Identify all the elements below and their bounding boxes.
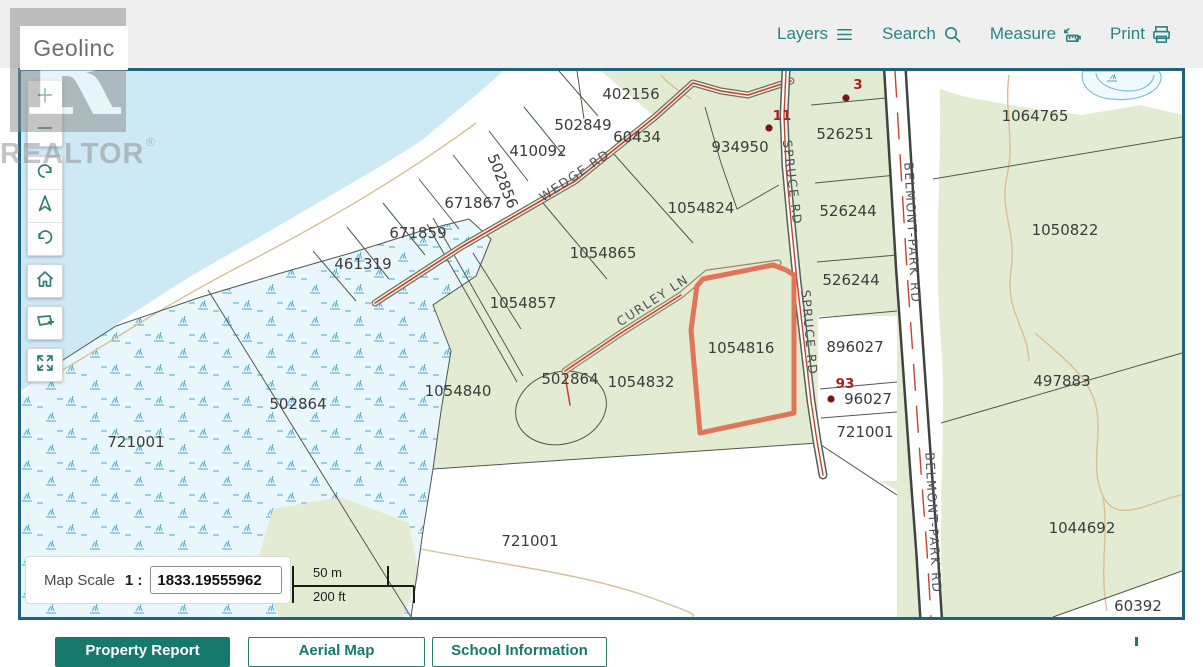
parcel-label: 721001 — [107, 433, 164, 451]
nav-measure-label: Measure — [990, 24, 1056, 44]
scale-bar-imperial: 200 ft — [313, 589, 346, 604]
parcel-label: 60434 — [613, 128, 661, 146]
compass-button[interactable] — [28, 189, 62, 222]
rotate-ccw-icon — [35, 227, 55, 252]
parcel-label: 671867 — [444, 194, 501, 212]
parcel-label: 410092 — [509, 142, 566, 160]
parcel-label: 402156 — [602, 85, 659, 103]
zoom-out-button[interactable] — [28, 113, 62, 146]
civic-dot — [765, 124, 772, 131]
parcel-label: 1054865 — [570, 244, 637, 262]
parcel-label: 896027 — [826, 338, 883, 356]
map-scale-control: Map Scale 1 : — [25, 556, 291, 604]
map-tool-group — [27, 264, 63, 298]
map-tool-group — [27, 80, 63, 147]
fullscreen-button[interactable] — [28, 349, 62, 381]
layers-icon — [835, 25, 854, 44]
parcel-label: 526251 — [816, 125, 873, 143]
school-information-button[interactable]: School Information — [432, 637, 607, 667]
minus-icon — [35, 118, 55, 143]
app-logo: Geolinc — [20, 26, 128, 70]
scale-bar: 50 m 200 ft — [288, 556, 428, 608]
map-scale-label: Map Scale — [44, 572, 115, 589]
map-tool-group — [27, 348, 63, 382]
civic-dot — [827, 395, 834, 402]
address-label: 96027 — [844, 390, 892, 408]
box-plus-icon — [35, 311, 55, 336]
nav-search-label: Search — [882, 24, 936, 44]
nav-print-label: Print — [1110, 24, 1145, 44]
map-tool-group — [27, 156, 63, 256]
expand-icon — [35, 353, 55, 378]
scale-bar-metric: 50 m — [313, 565, 342, 580]
map-container[interactable]: 4021565028496043441009250285667186767185… — [18, 68, 1185, 620]
parcel-label: 1054840 — [425, 382, 492, 400]
rotate-cw-icon — [35, 161, 55, 186]
parcel-label: 1054832 — [608, 373, 675, 391]
home-icon — [35, 269, 55, 294]
parcel-label: 1054816 — [708, 339, 775, 357]
parcel-label: 526244 — [819, 202, 876, 220]
parcel-label: 502864 — [541, 370, 598, 388]
measure-icon — [1063, 25, 1082, 44]
civic-dot — [842, 94, 849, 101]
search-icon — [943, 25, 962, 44]
property-report-button[interactable]: Property Report — [55, 637, 230, 667]
parcel-label: 497883 — [1033, 372, 1090, 390]
footer-corner-tick — [1135, 637, 1138, 646]
map-scale-ratio: 1 : — [125, 572, 143, 589]
parcel-label: 1054857 — [490, 294, 557, 312]
parcel-label: 60392 — [1114, 597, 1162, 615]
app-logo-text: Geolinc — [33, 35, 114, 62]
nav-layers-label: Layers — [777, 24, 828, 44]
zoom-in-button[interactable] — [28, 81, 62, 113]
parcel-label: 721001 — [836, 423, 893, 441]
parcel-label: 671859 — [389, 224, 446, 242]
parcel-label: 721001 — [501, 532, 558, 550]
parcel-label: 502864 — [269, 395, 326, 413]
plus-icon — [35, 85, 55, 110]
select-extent-button[interactable] — [28, 307, 62, 339]
nav-layers[interactable]: Layers — [777, 24, 854, 44]
parcel-label: 1054824 — [668, 199, 735, 217]
print-icon — [1152, 25, 1171, 44]
nav-measure[interactable]: Measure — [990, 24, 1082, 44]
parcel-label: 526244 — [822, 271, 879, 289]
nav-print[interactable]: Print — [1110, 24, 1171, 44]
nav-search[interactable]: Search — [882, 24, 962, 44]
parcel-label: 934950 — [711, 138, 768, 156]
home-button[interactable] — [28, 265, 62, 297]
parcel-label: 1044692 — [1049, 519, 1116, 537]
aerial-map-button[interactable]: Aerial Map — [248, 637, 425, 667]
compass-icon — [35, 194, 55, 219]
civic-number: 3 — [853, 77, 862, 93]
parcel-label: 1050822 — [1032, 221, 1099, 239]
parcel-label: 502849 — [554, 116, 611, 134]
parcel-label: 461319 — [334, 255, 391, 273]
rotate-cw-button[interactable] — [28, 157, 62, 189]
parcel-label: 1064765 — [1002, 107, 1069, 125]
map-canvas[interactable]: 4021565028496043441009250285667186767185… — [21, 71, 1182, 617]
civic-number: 11 — [773, 108, 792, 124]
map-scale-input[interactable] — [150, 566, 282, 594]
rotate-ccw-button[interactable] — [28, 222, 62, 255]
map-tool-group — [27, 306, 63, 340]
header-nav: LayersSearchMeasurePrint — [777, 0, 1171, 68]
